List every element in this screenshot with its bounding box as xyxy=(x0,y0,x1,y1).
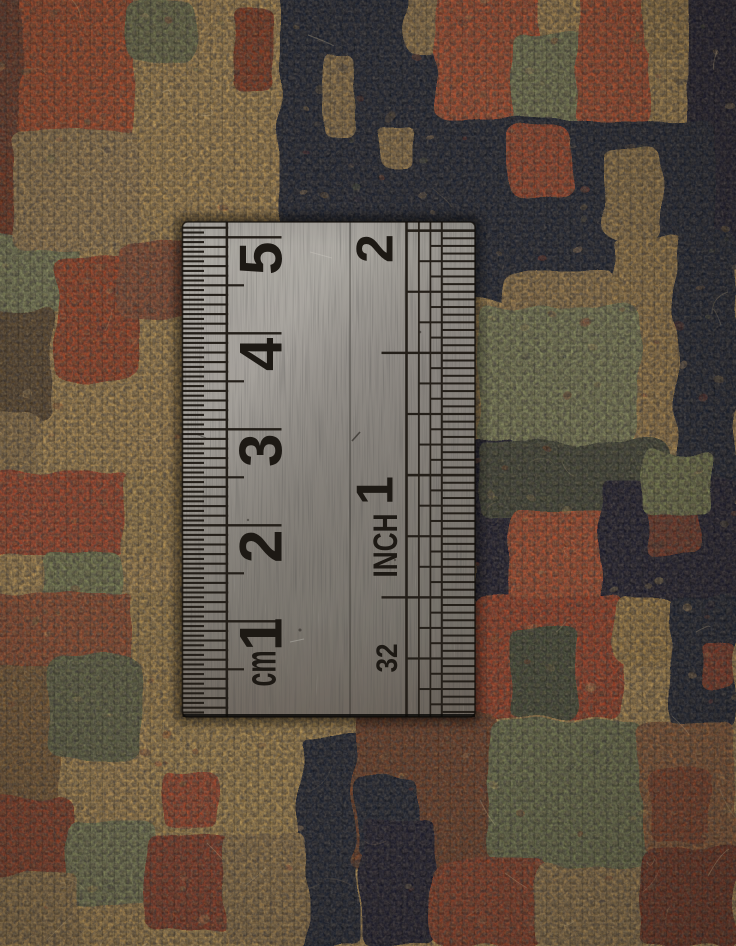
svg-text:1: 1 xyxy=(228,618,295,651)
svg-text:3: 3 xyxy=(228,434,295,467)
svg-text:2: 2 xyxy=(228,530,295,563)
svg-text:1: 1 xyxy=(347,476,405,505)
svg-text:2: 2 xyxy=(347,234,405,263)
svg-text:INCH: INCH xyxy=(367,514,405,578)
svg-text:cm: cm xyxy=(237,651,286,687)
svg-text:5: 5 xyxy=(228,242,295,275)
svg-text:32: 32 xyxy=(371,644,404,673)
svg-text:4: 4 xyxy=(228,337,295,371)
